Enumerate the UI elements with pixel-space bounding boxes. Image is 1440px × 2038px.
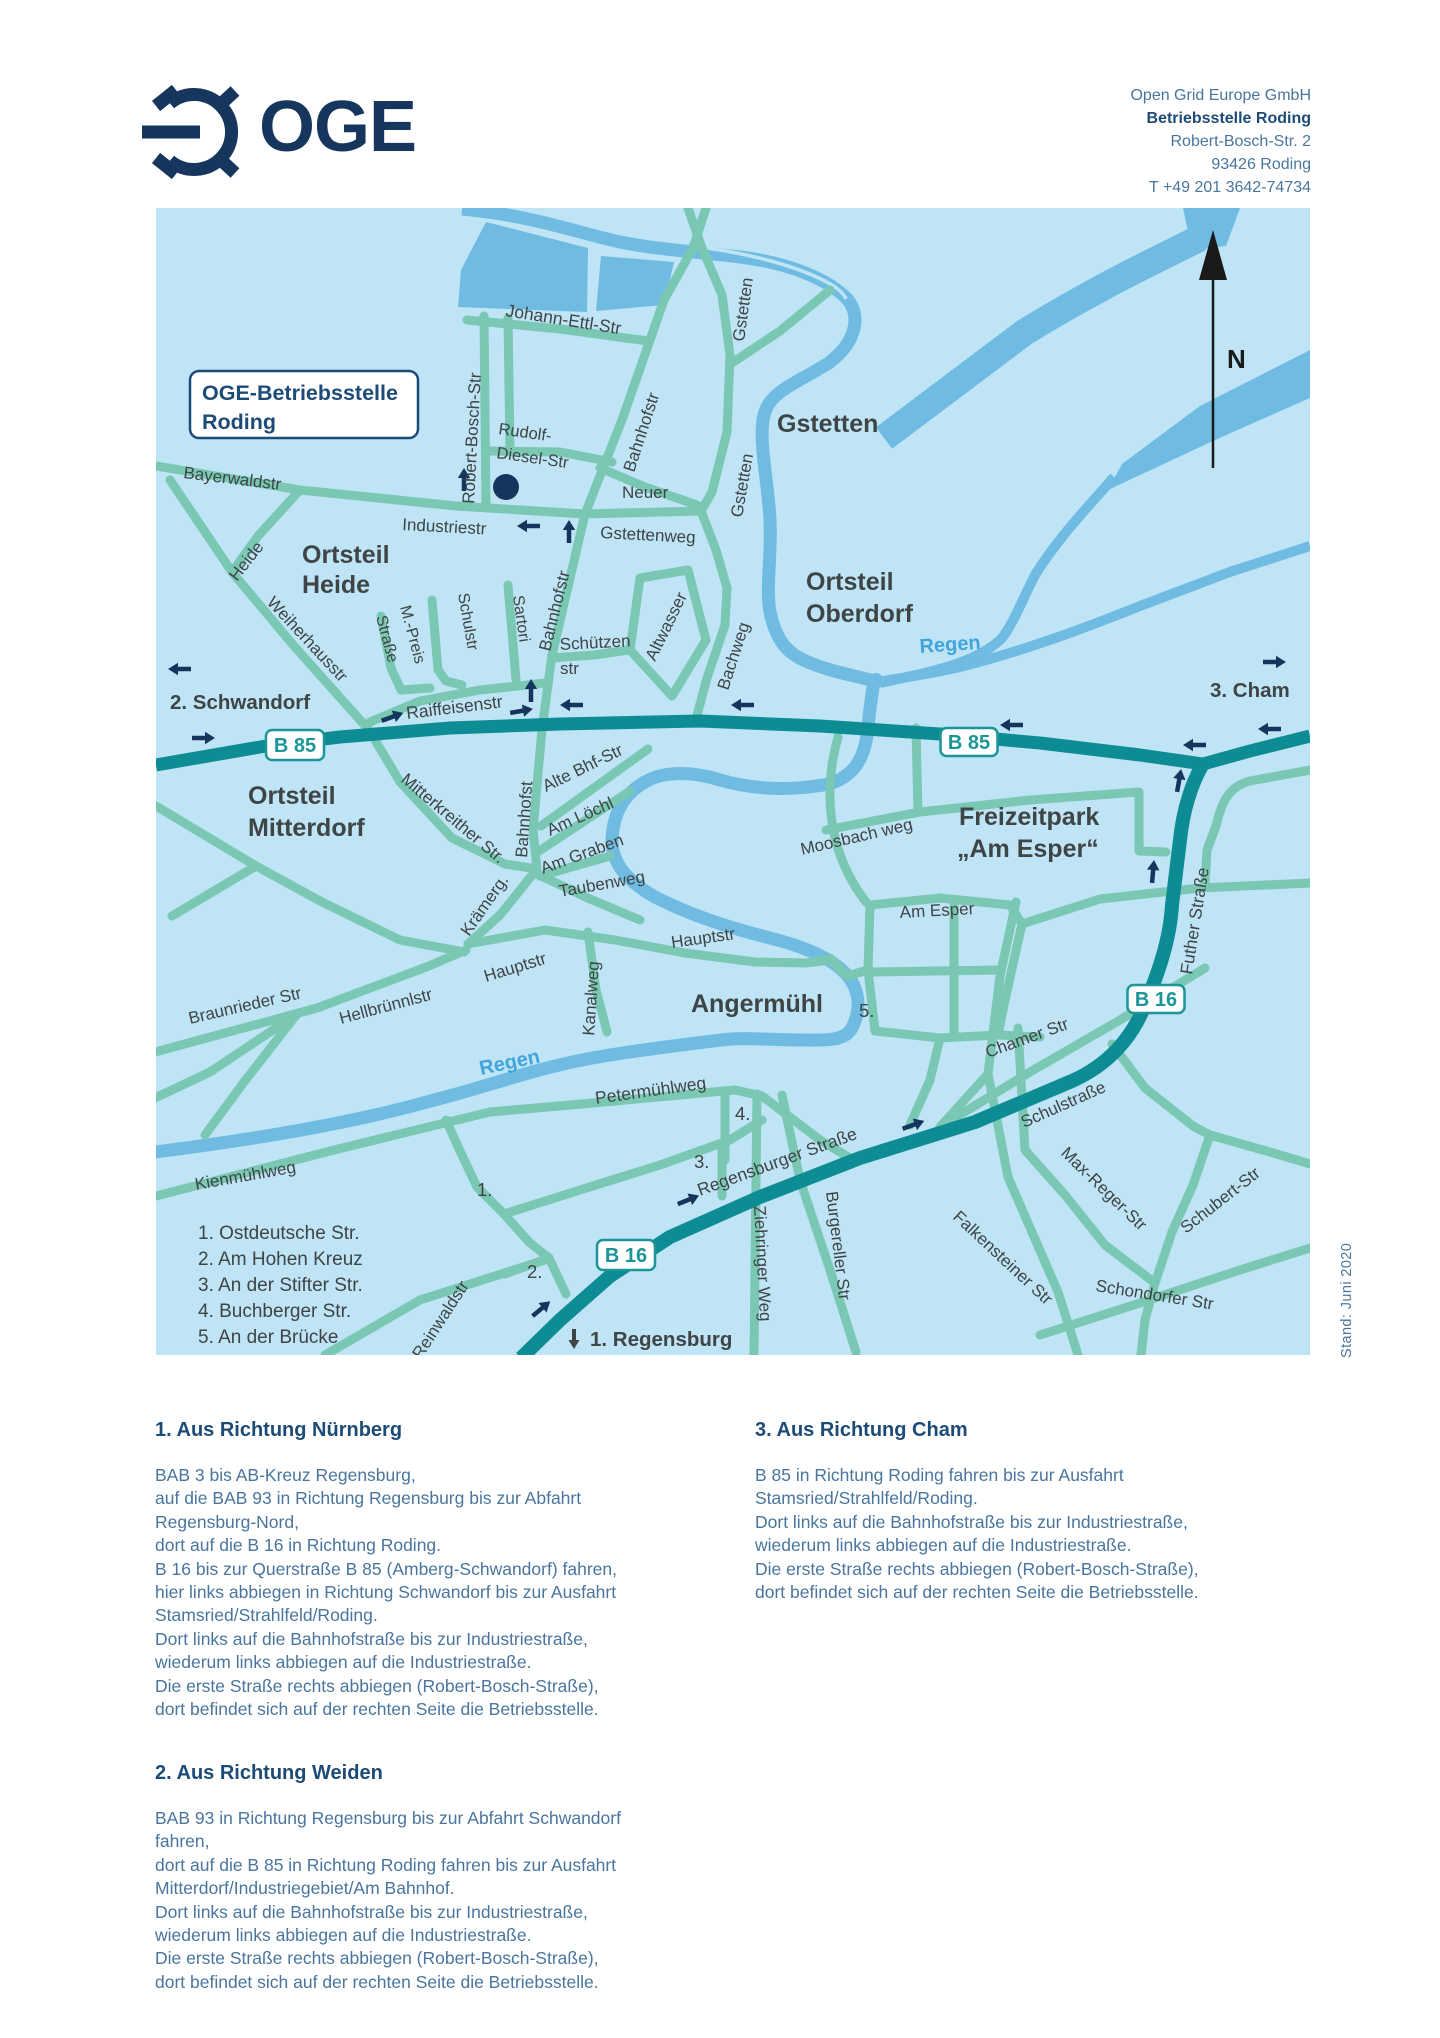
svg-text:Neuer: Neuer <box>622 483 669 502</box>
svg-text:B 16: B 16 <box>1135 989 1177 1011</box>
svg-text:str: str <box>560 659 579 678</box>
svg-text:„Am Esper“: „Am Esper“ <box>957 835 1099 863</box>
svg-text:Mitterdorf: Mitterdorf <box>248 814 365 842</box>
svg-text:Oberdorf: Oberdorf <box>806 600 914 628</box>
svg-text:Freizeitpark: Freizeitpark <box>959 803 1099 831</box>
svg-text:B 85: B 85 <box>274 735 316 757</box>
svg-text:4. Buchberger Str.: 4. Buchberger Str. <box>198 1301 351 1322</box>
svg-text:Heide: Heide <box>302 571 370 599</box>
svg-text:Regen: Regen <box>919 632 982 658</box>
svg-text:2. Schwandorf: 2. Schwandorf <box>170 691 310 714</box>
svg-text:1. Ostdeutsche Str.: 1. Ostdeutsche Str. <box>198 1223 360 1244</box>
svg-text:Angermühl: Angermühl <box>691 990 823 1018</box>
svg-text:3. Cham: 3. Cham <box>1210 679 1290 702</box>
svg-text:Ortsteil: Ortsteil <box>248 782 336 810</box>
svg-text:Gstetten: Gstetten <box>777 410 878 438</box>
svg-text:OGE-Betriebsstelle: OGE-Betriebsstelle <box>202 381 398 405</box>
svg-text:1. Regensburg: 1. Regensburg <box>590 1328 732 1351</box>
svg-text:4.: 4. <box>735 1103 750 1124</box>
svg-text:3. An der Stifter Str.: 3. An der Stifter Str. <box>198 1275 363 1296</box>
svg-text:Schützen: Schützen <box>559 631 631 654</box>
svg-text:2.: 2. <box>527 1261 542 1282</box>
svg-text:1.: 1. <box>477 1179 492 1200</box>
svg-text:Roding: Roding <box>202 410 276 434</box>
svg-text:N: N <box>1227 344 1246 374</box>
svg-text:2. Am Hohen Kreuz: 2. Am Hohen Kreuz <box>198 1249 363 1270</box>
svg-text:Ortsteil: Ortsteil <box>806 568 894 596</box>
svg-text:B 85: B 85 <box>948 732 990 754</box>
svg-text:Ortsteil: Ortsteil <box>302 541 390 569</box>
svg-text:Am Esper: Am Esper <box>899 899 975 922</box>
svg-text:B 16: B 16 <box>605 1245 647 1267</box>
svg-text:5. An der Brücke: 5. An der Brücke <box>198 1327 338 1348</box>
svg-text:3.: 3. <box>694 1151 709 1172</box>
svg-text:5.: 5. <box>859 1000 874 1021</box>
